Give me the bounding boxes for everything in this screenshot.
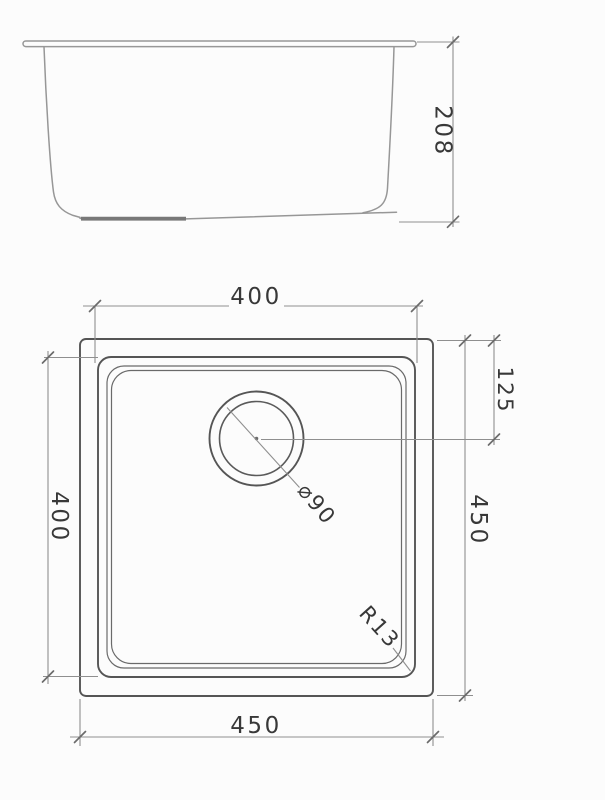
leader-line [393,648,411,671]
sink-right-wall [363,47,394,213]
dim-bowl-length: 400 [43,351,99,684]
side-view: 208 [23,37,460,228]
overall-width-label: 450 [230,713,281,739]
bowl-length-label: 400 [46,491,72,542]
drain-offset-label: 125 [492,366,517,413]
sink-left-wall [44,47,80,218]
plan-view: ⌀90 R13 400 400 [43,284,518,746]
dim-drain-offset: 125 [261,335,517,445]
sink-rim-profile [23,41,416,47]
bowl-width-label: 400 [230,284,281,310]
overall-height-label: 450 [465,494,491,545]
dim-drain-diameter: ⌀90 [227,408,341,531]
dim-depth: 208 [399,37,460,228]
sink-technical-drawing: 208 ⌀90 R13 400 [0,0,605,800]
dim-overall-height: 450 [437,335,501,701]
dim-overall-width: 450 [70,699,444,746]
depth-dimension-label: 208 [430,105,456,156]
drawing-page: 208 ⌀90 R13 400 [0,0,605,800]
dim-bowl-width: 400 [83,284,423,363]
corner-radius-label: R13 [354,601,405,654]
